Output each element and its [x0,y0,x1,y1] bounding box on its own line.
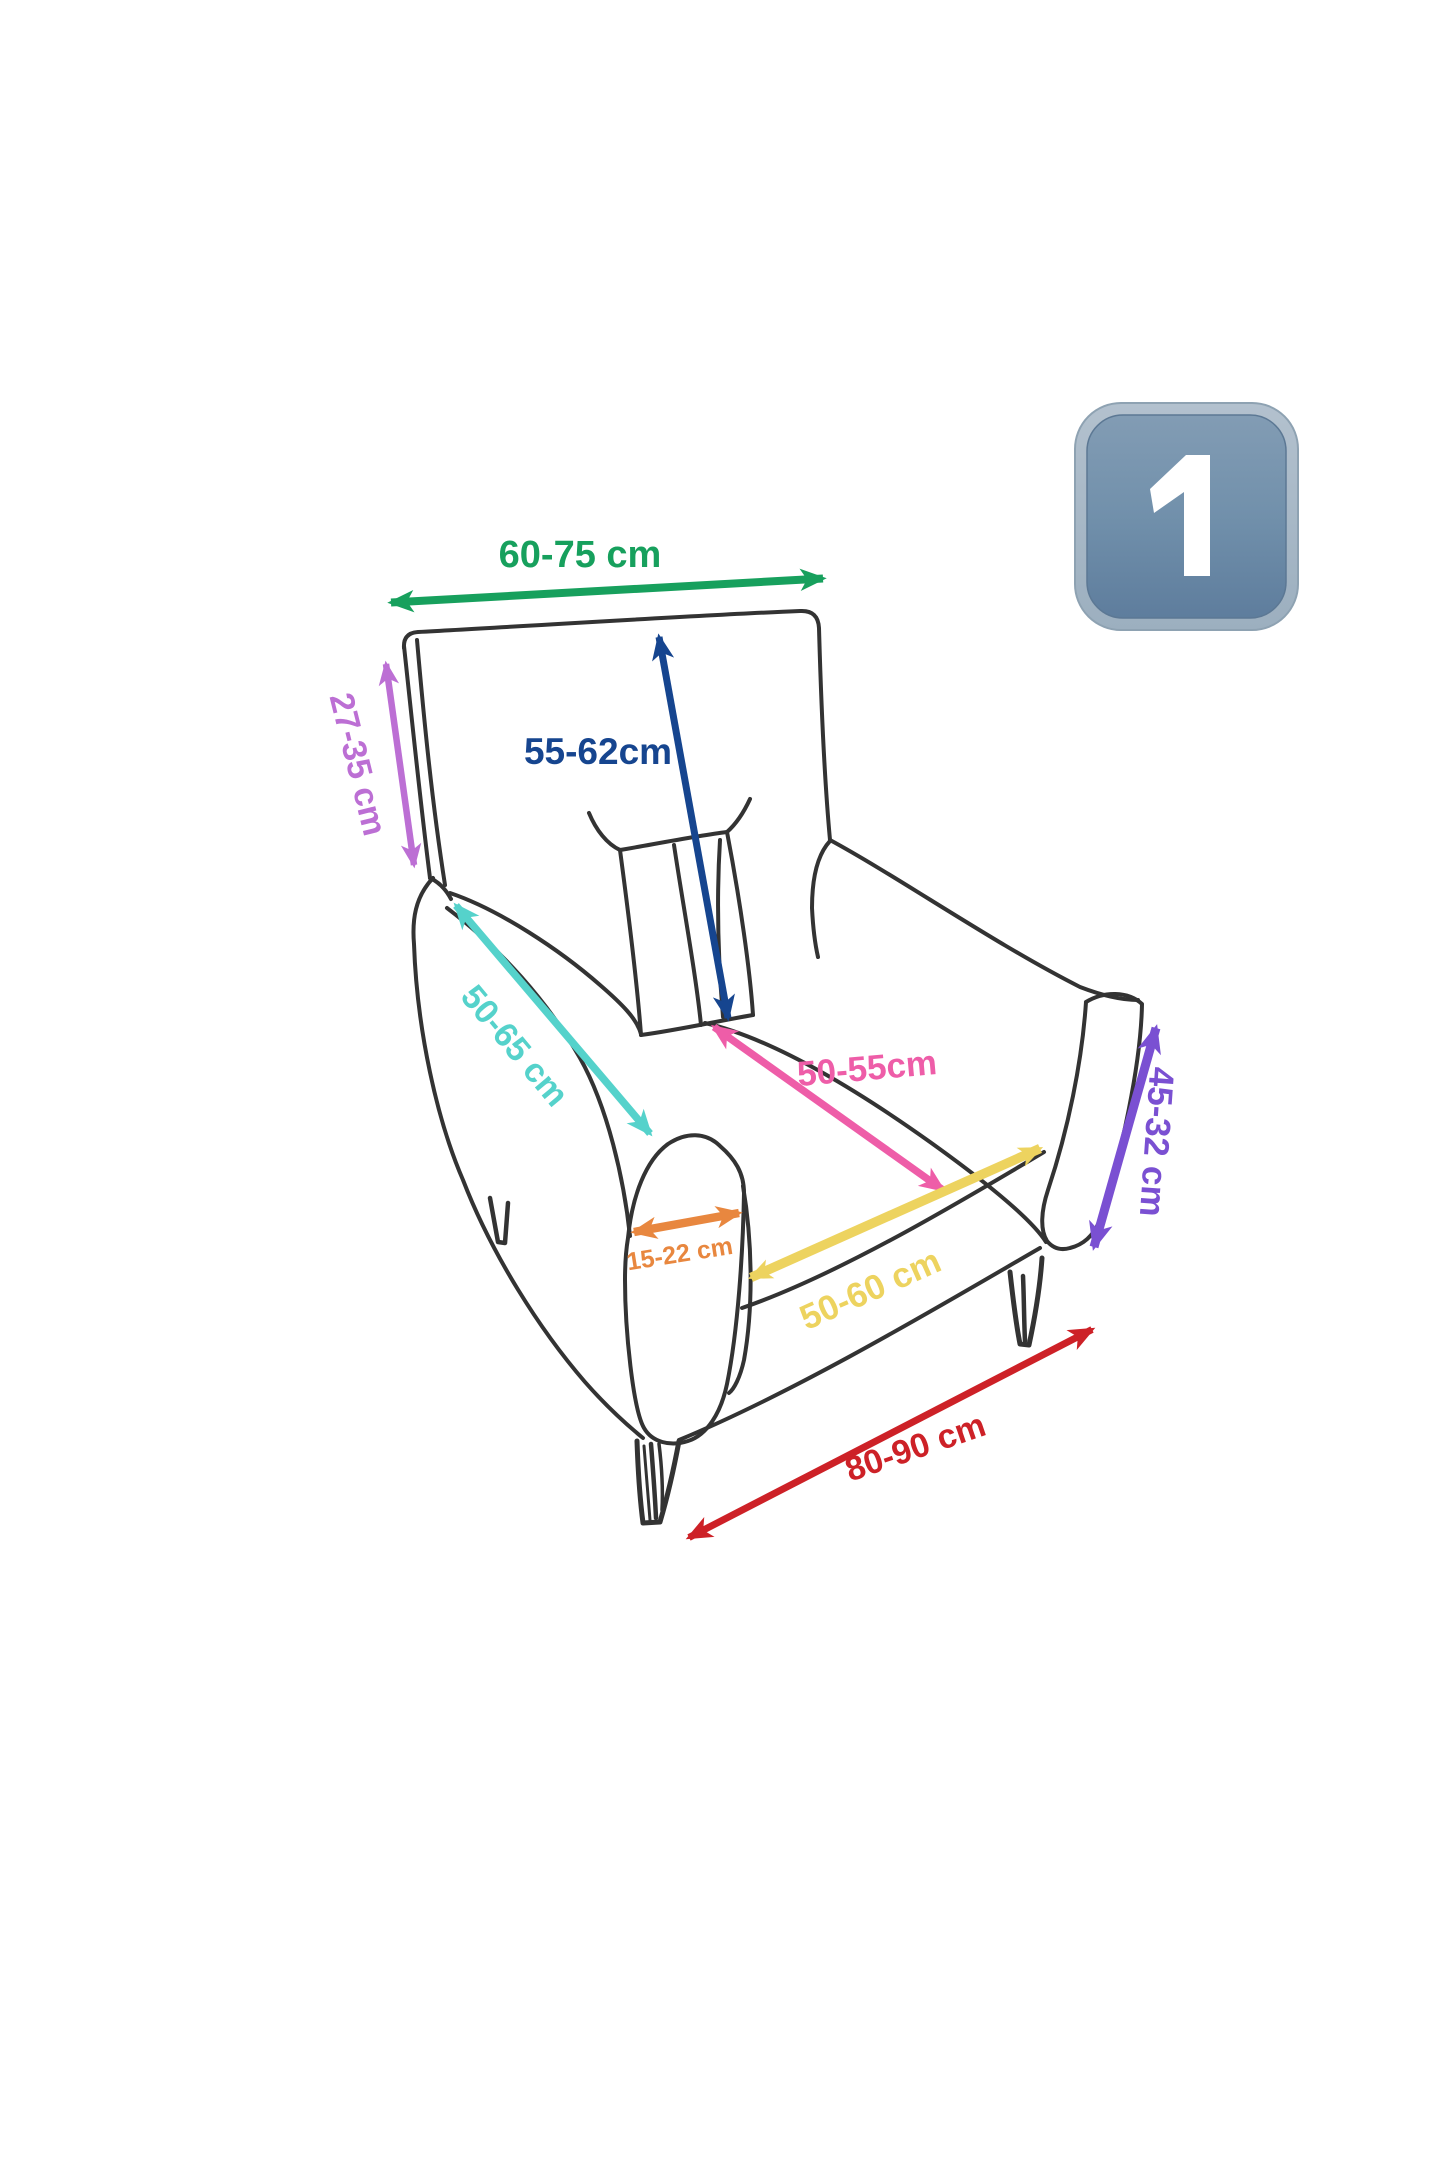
svg-text:55-62cm: 55-62cm [524,731,672,772]
svg-text:60-75 cm: 60-75 cm [499,534,662,576]
